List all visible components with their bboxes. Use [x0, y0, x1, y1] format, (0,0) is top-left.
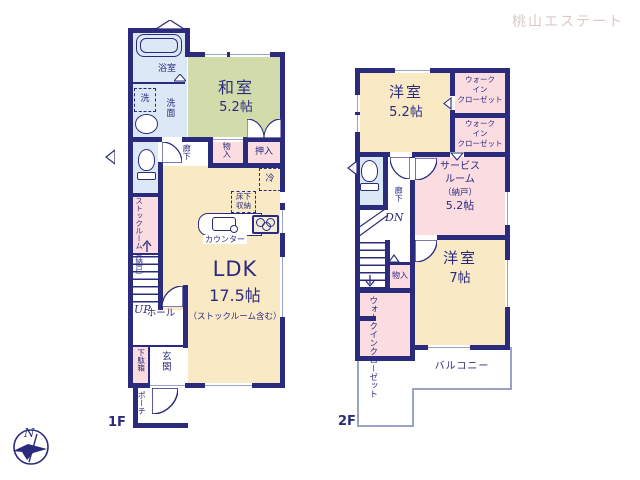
bedroom2-label: 洋室	[430, 250, 490, 267]
bathtub-icon	[136, 34, 182, 57]
wic1-label: ウォークインクローゼット	[455, 75, 505, 104]
floor-storage-label: 床下収納	[231, 193, 256, 210]
wic2-label: ウォークインクローゼット	[455, 119, 505, 148]
hall-label: ホール	[140, 309, 182, 320]
window-service-right	[505, 192, 510, 225]
floorplan-canvas: 桃山エステート	[0, 0, 640, 480]
window-bedroom2-bottom	[428, 345, 470, 350]
toilet-icon-1f	[138, 149, 155, 171]
genkan-label: 玄関	[159, 351, 170, 372]
balcony-rail-left	[357, 361, 359, 427]
balcony-label: バルコニー	[430, 361, 494, 373]
compass-icon: N	[9, 422, 53, 468]
window-bedroom1-left-1	[355, 95, 360, 112]
storage-small-label-2f: 物入	[389, 271, 411, 280]
stairs-down-arrow-icon	[362, 274, 378, 289]
storage-small-label-1f: 物入	[222, 142, 231, 158]
ldk-size: 17.5帖	[200, 287, 270, 305]
toilet-window-arrow-1f	[105, 149, 115, 165]
bay-vent-triangle-icon	[156, 20, 184, 30]
stairs-down-label: DN	[385, 212, 403, 225]
shoe-cabinet-label: 下駄箱	[136, 349, 145, 372]
closet-door-arc-left	[247, 119, 264, 138]
bathroom-label: 浴室	[146, 64, 188, 74]
tatami-room-label: 和室	[205, 79, 267, 97]
service-room-label: サービス ルーム （納戸） 5.2帖	[420, 160, 500, 213]
tatami-room-size: 5.2帖	[205, 101, 267, 116]
balcony-rail-step	[412, 388, 414, 427]
window-bedroom1-top	[395, 68, 430, 73]
ldk-note: （ストックルーム含む）	[185, 313, 285, 323]
balcony-rail-bottom	[357, 425, 414, 427]
counter-label: カウンター	[203, 235, 247, 244]
stove-icon	[252, 215, 279, 234]
toilet-tank-icon-1f	[137, 172, 156, 180]
window-ldk-bottom	[205, 383, 252, 388]
toilet-window-arrow-2f	[347, 160, 357, 176]
washbasin-icon	[135, 114, 158, 134]
balcony-rail-right	[510, 347, 512, 390]
closet-door-arc-right	[264, 119, 281, 138]
hallway-label-1f: 廊下	[182, 144, 191, 160]
bedroom2-size: 7帖	[430, 272, 490, 287]
compass-north-label: N	[23, 426, 35, 440]
porch-label: ポーチ	[137, 391, 146, 415]
kitchen-sink-icon	[212, 217, 236, 231]
window-bedroom2-right	[505, 260, 510, 307]
stairs-break-lines	[358, 207, 388, 237]
balcony-rail-mid	[412, 388, 512, 390]
door-arc-hall-ldk	[162, 286, 183, 307]
bedroom1-size: 5.2帖	[378, 106, 434, 121]
window-ldk-right-2	[280, 257, 285, 317]
oshiire-label: 押入	[248, 147, 280, 157]
window-bedroom1-left-2	[355, 115, 360, 132]
door-arc-corridor-2f	[390, 157, 410, 179]
toilet-tank-icon-2f	[360, 183, 379, 191]
window-tatami-top-2	[230, 52, 270, 57]
vent-triangle-icon	[174, 74, 186, 82]
door-arc-washroom	[162, 142, 182, 163]
floor-label-2f: 2F	[338, 415, 356, 430]
washroom-label: 洗面	[164, 98, 174, 118]
window-tatami-top-1	[205, 52, 227, 57]
toilet-icon-2f	[361, 160, 378, 182]
window-ldk-right-1	[280, 210, 285, 233]
hallway-label-2f: 廊下	[394, 186, 403, 202]
wic1-door-arrow-icon	[443, 97, 452, 110]
door-arc-entrance	[152, 388, 178, 414]
washer-label: 洗	[138, 94, 152, 104]
watermark-text: 桃山エステート	[512, 11, 624, 31]
ldk-label: LDK	[200, 257, 270, 281]
fridge-label: 冷	[259, 174, 281, 184]
stockroom-label: ストックルーム（納戸）	[134, 197, 143, 255]
storage-door-triangle-icon	[388, 254, 400, 263]
bedroom1-label: 洋室	[378, 84, 434, 101]
wic3-label: ウォークインクローゼット	[367, 296, 377, 354]
floor-label-1f: 1F	[108, 416, 126, 431]
